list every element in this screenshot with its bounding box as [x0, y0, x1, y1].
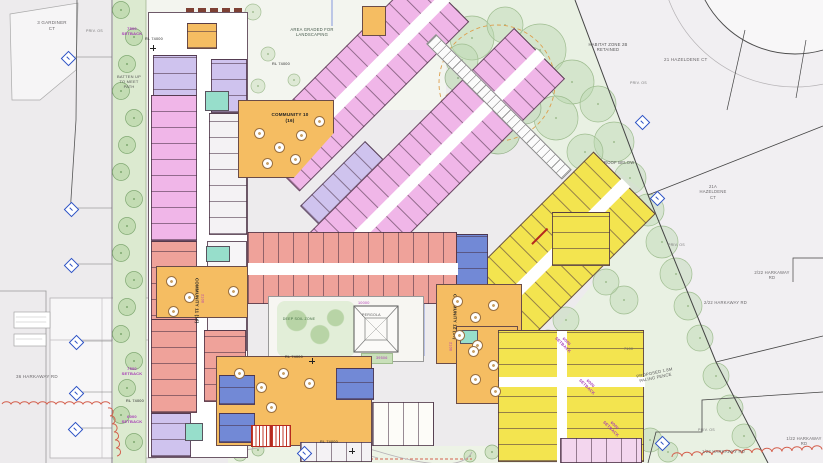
lot-label-harkaway36: 36 HARKAWAY RD [16, 374, 58, 380]
dim-10000: 10000 [358, 301, 370, 306]
corridor [248, 263, 458, 275]
dining-table-icon [278, 368, 289, 379]
setback-label-low: 6000 SETBACK [118, 414, 146, 424]
rooms-pink-west [151, 95, 197, 241]
dining-table-icon [470, 312, 481, 323]
priv-os-label-2: PRIV. OS [630, 81, 647, 85]
room-blue-sw-a [219, 375, 255, 405]
dim-2100-b: 2100 [448, 342, 453, 351]
rl-label-1: RL 74000 [145, 37, 163, 42]
lot-label-harkaway222-a: 2/22 HARKAWAY RD [752, 270, 792, 281]
dim-7100: 7100 [624, 347, 633, 352]
room-orange-north [362, 6, 386, 36]
dining-table-icon [452, 296, 463, 307]
priv-os-label-1: PRIV. OS [86, 29, 103, 33]
dining-table-icon [488, 360, 499, 371]
dining-table-icon [266, 402, 277, 413]
batten-label: BATTEN UP TO MEET PATH [116, 74, 142, 89]
habitat-label: HABITAT ZONE 2B RETAINED [586, 42, 630, 53]
lot-label-gardiner: 3 GARDINER CT [34, 20, 70, 31]
deep-soil-zone [277, 301, 355, 357]
level-marker-icon [309, 358, 315, 364]
deep-soil-label: DEEP SOIL ZONE [279, 317, 319, 321]
dining-table-icon [166, 276, 177, 287]
rooms-salmon-b [151, 319, 197, 413]
dining-table-icon [304, 378, 315, 389]
dining-table-icon [168, 306, 179, 317]
room-teal-a [205, 91, 229, 111]
lot-label-hazeldene21: 21 HAZELDENE CT [664, 57, 708, 63]
dining-table-icon [290, 154, 301, 165]
dining-table-icon [490, 386, 501, 397]
dining-table-icon [314, 116, 325, 127]
corridor [499, 377, 645, 387]
setback-label-mid: 7500 SETBACK [118, 366, 146, 376]
dining-table-icon [262, 158, 273, 169]
stair-b [271, 425, 291, 447]
dining-table-icon [470, 374, 481, 385]
wing-salmon-central [247, 232, 457, 304]
rl-label-3: RL 74000 [285, 355, 303, 360]
rooms-service-south [372, 402, 434, 446]
dining-table-icon [254, 128, 265, 139]
dim-2100-a: 2100 [200, 294, 205, 303]
stair-a [251, 425, 271, 447]
community-10-label: COMMUNITY 10 (16) [268, 112, 312, 123]
dim-39506: 39506 [376, 356, 388, 361]
room-orange-top [187, 23, 217, 49]
fire-wall-mark [531, 228, 548, 245]
level-marker-icon [349, 448, 355, 454]
rl-label-4: RL 74000 [320, 440, 338, 445]
room-blue-sw-b [219, 413, 255, 443]
rooms-yellow-east [552, 212, 610, 266]
community-11-label: COMMUNITY 11 (16) [194, 270, 200, 332]
dining-table-icon [468, 346, 479, 357]
room-blue-central-south [336, 368, 374, 400]
central-courtyard: DEEP SOIL ZONE PERGOLA [268, 296, 424, 362]
room-teal-b [185, 423, 203, 441]
dining-table-icon [274, 142, 285, 153]
dining-table-icon [228, 286, 239, 297]
setback-label-top: 7500 SETBACK [118, 26, 146, 36]
priv-os-label-3: PRIV. OS [668, 243, 685, 247]
dining-table-icon [296, 130, 307, 141]
lot-label-hazeldene21a: 21A HAZELDENE CT [698, 184, 728, 200]
dining-table-icon [184, 292, 195, 303]
lot-label-harkaway122-b: 1/22 HARKAWAY RD [786, 436, 822, 447]
priv-os-label-4: PRIV. OS [698, 428, 715, 432]
lot-label-harkaway122-a: 1/22 HARKAWAY RD [702, 449, 745, 454]
rl-label-2: RL 74000 [272, 62, 290, 67]
dining-table-icon [488, 300, 499, 311]
level-marker-icon [150, 45, 156, 51]
rl-label-5: RL 74000 [126, 399, 144, 404]
rooms-pink-se [560, 438, 642, 463]
lot-label-harkaway222-b: 2/22 HARKAWAY RD [704, 300, 747, 305]
pergola-label: PERGOLA [362, 313, 381, 317]
site-plan-canvas: DEEP SOIL ZONE PERGOLA 3 GARDINER CT 36 … [0, 0, 823, 463]
dining-table-icon [454, 330, 465, 341]
roof-below-label: ROOF BELOW [604, 160, 634, 165]
area-graded-label: AREA GRADED FOR LANDSCAPING [280, 27, 344, 38]
dining-table-icon [256, 382, 267, 393]
dining-table-icon [234, 368, 245, 379]
south-verge-fill [228, 446, 520, 463]
room-teal-c [206, 246, 230, 262]
